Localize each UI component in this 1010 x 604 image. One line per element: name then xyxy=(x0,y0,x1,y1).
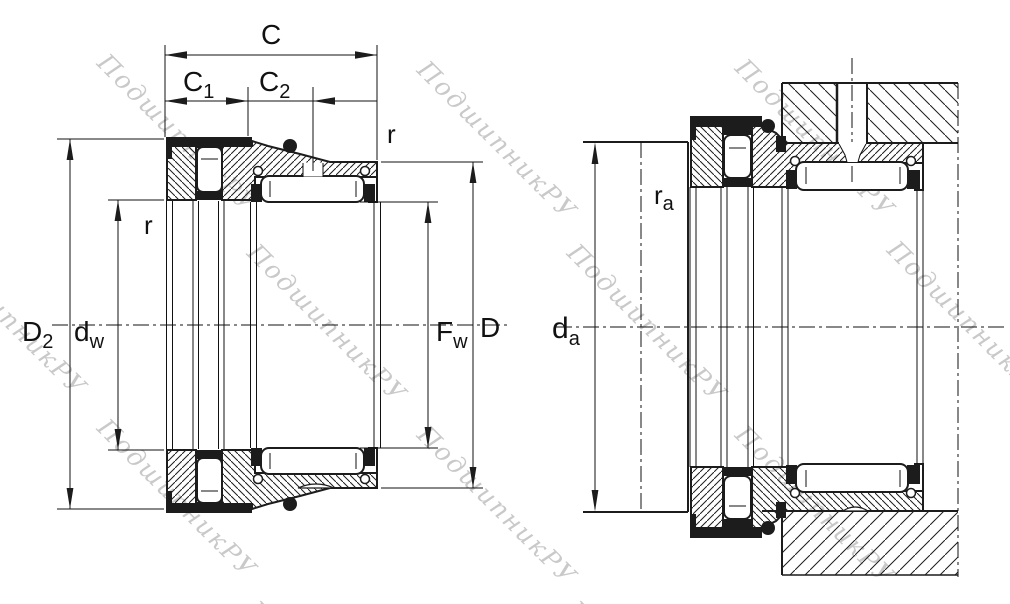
label-C2: C2 xyxy=(259,66,290,103)
cage-pin xyxy=(907,157,916,166)
dimension-D2: D2 xyxy=(22,139,164,509)
left-view-upper-half xyxy=(166,137,377,202)
right-view-mounting-section: da ra xyxy=(552,58,1008,577)
needle-cage-right xyxy=(364,184,375,202)
needle-roller xyxy=(261,176,364,202)
label-r-outer: r xyxy=(387,119,396,149)
cage-pin xyxy=(254,167,263,176)
cage-pin xyxy=(361,167,370,176)
label-da: da xyxy=(552,312,581,350)
bearing-drawing-page: ПодшипникРУ ПодшипникРУ ПодшипникРУ Подш… xyxy=(0,0,1010,604)
label-r-inner: r xyxy=(144,210,153,240)
housing-bottom-block xyxy=(762,511,958,575)
thrust-washer-left xyxy=(167,146,196,200)
label-ra: ra xyxy=(654,180,675,215)
label-D2: D2 xyxy=(22,316,53,353)
label-C: C xyxy=(261,19,281,50)
thrust-cage-inner xyxy=(723,178,752,187)
left-view-bearing-section: C C1 C2 r r D2 xyxy=(22,19,508,513)
label-dw: dw xyxy=(74,316,105,353)
thrust-roller xyxy=(724,135,751,178)
label-C1: C1 xyxy=(183,66,214,103)
bearing-technical-drawing: C C1 C2 r r D2 xyxy=(0,0,1010,604)
thrust-washer-left xyxy=(691,126,723,187)
label-D: D xyxy=(480,312,500,343)
left-view-lower-half xyxy=(166,448,377,513)
label-Fw: Fw xyxy=(436,316,468,353)
thrust-roller xyxy=(197,147,222,192)
thrust-cage-outer xyxy=(723,126,752,135)
seal-band xyxy=(690,116,762,126)
